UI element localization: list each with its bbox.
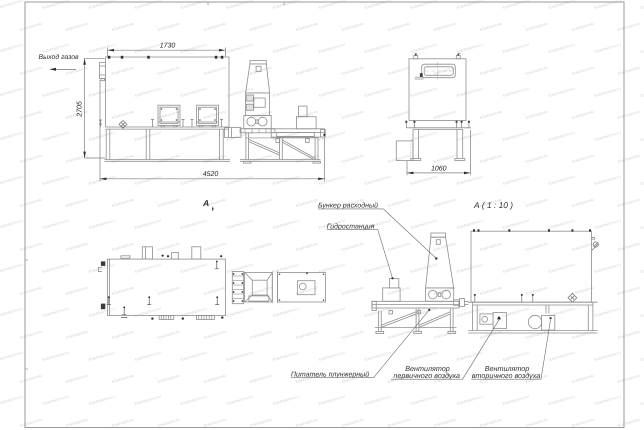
svg-text:Гидростанция: Гидростанция <box>327 222 375 230</box>
svg-text:А ( 1 : 10 ): А ( 1 : 10 ) <box>473 200 513 210</box>
svg-text:первичного воздуха: первичного воздуха <box>393 371 460 380</box>
svg-text:1060: 1060 <box>431 166 447 173</box>
svg-text:1730: 1730 <box>160 43 176 50</box>
svg-text:Бункер расходный: Бункер расходный <box>318 202 378 210</box>
svg-text:4520: 4520 <box>203 171 219 178</box>
svg-text:2705: 2705 <box>77 101 84 118</box>
svg-text:Выход газов: Выход газов <box>39 54 80 61</box>
svg-text:А: А <box>202 198 209 208</box>
svg-text:Питатель плунжерный: Питатель плунжерный <box>291 370 369 378</box>
svg-text:вторичного воздуха: вторичного воздуха <box>472 371 540 380</box>
